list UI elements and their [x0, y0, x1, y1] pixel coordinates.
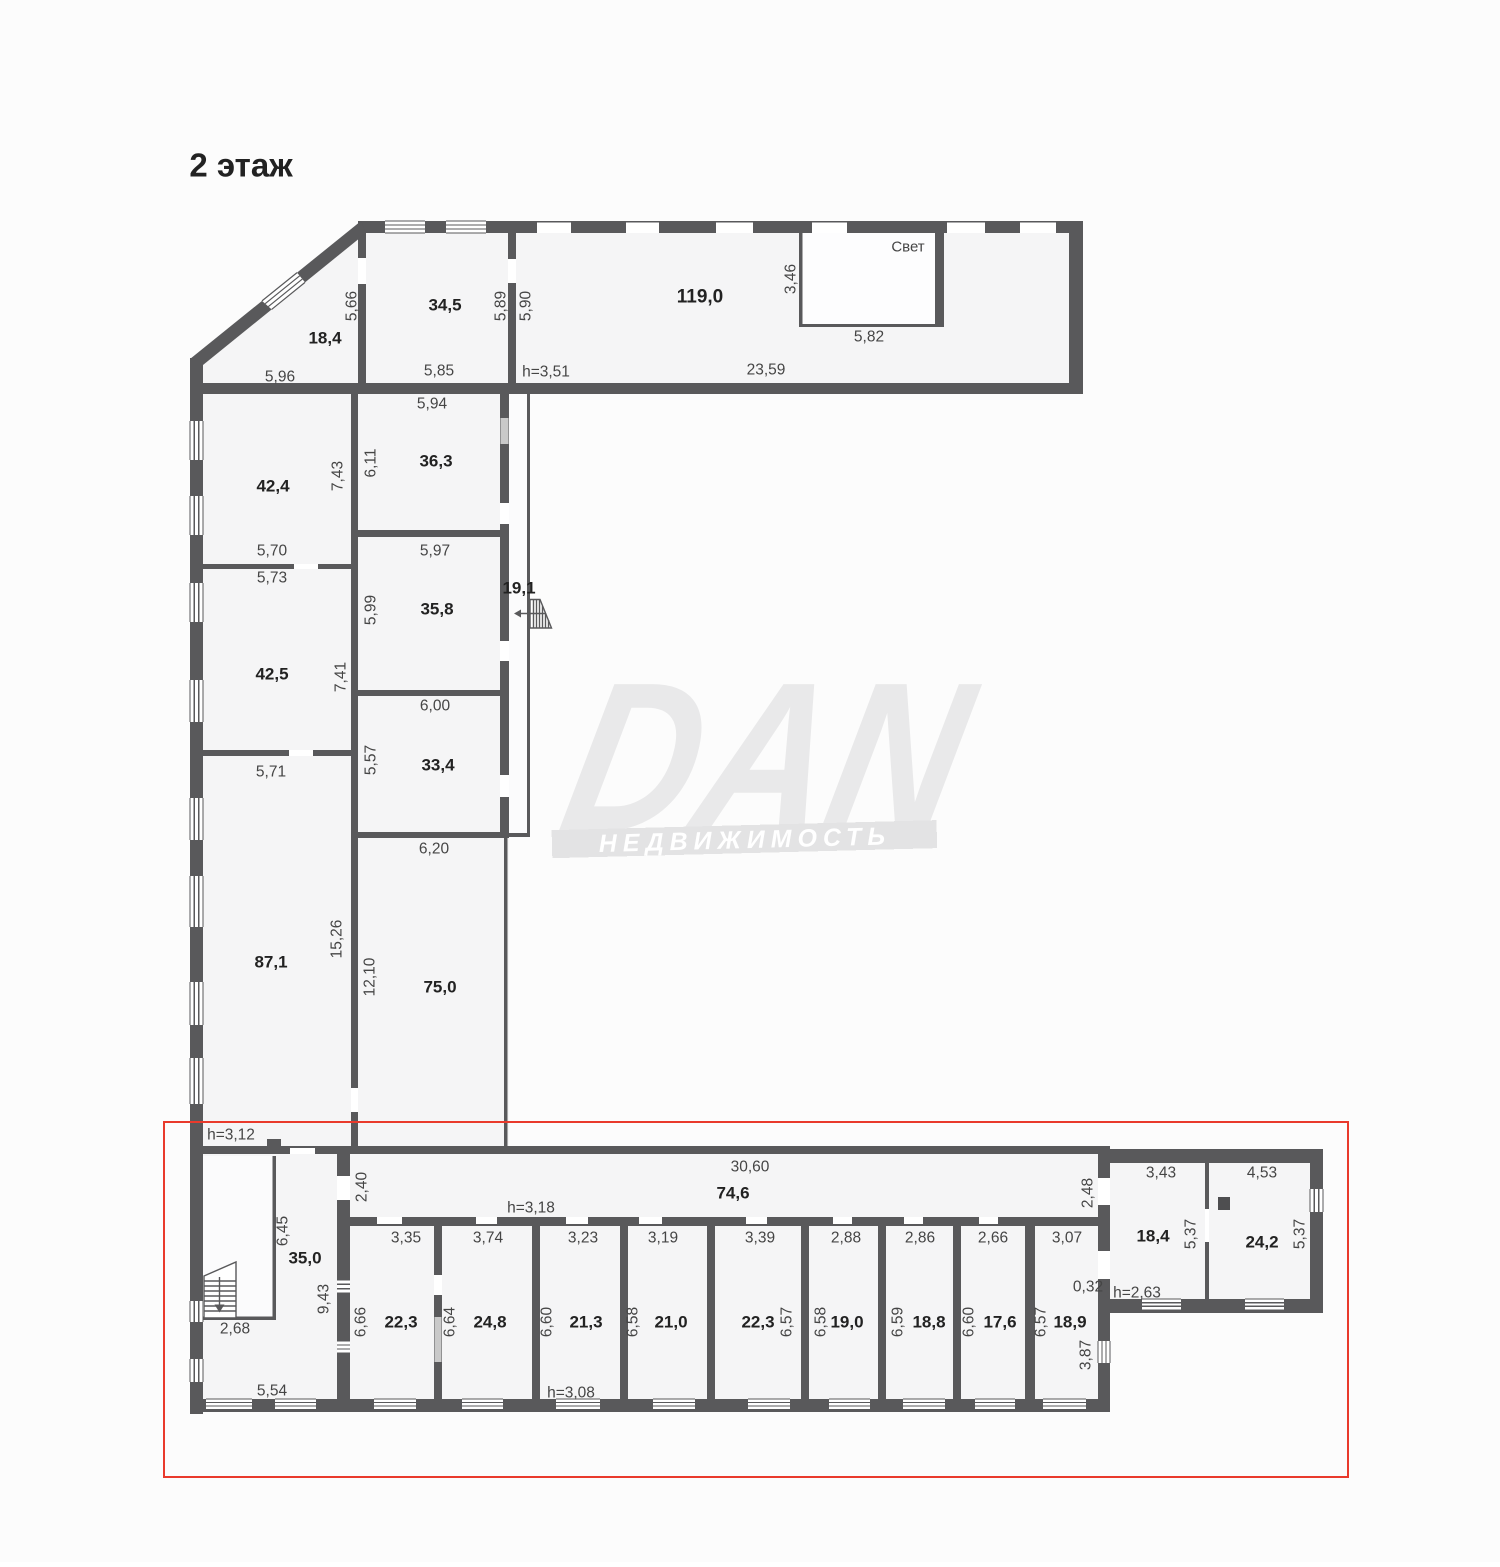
svg-text:5,99: 5,99 [363, 595, 380, 625]
svg-text:5,82: 5,82 [854, 329, 884, 346]
svg-text:2,88: 2,88 [831, 1230, 861, 1247]
svg-text:18,4: 18,4 [1136, 1227, 1170, 1246]
svg-text:18,8: 18,8 [912, 1313, 945, 1332]
svg-text:6,20: 6,20 [419, 841, 450, 858]
svg-text:18,9: 18,9 [1053, 1313, 1086, 1332]
svg-text:18,4: 18,4 [308, 329, 342, 348]
svg-text:2,40: 2,40 [354, 1172, 371, 1203]
svg-text:6,00: 6,00 [420, 698, 451, 715]
svg-text:2,48: 2,48 [1080, 1178, 1097, 1208]
svg-text:5,66: 5,66 [344, 291, 361, 321]
svg-text:36,3: 36,3 [419, 452, 452, 471]
svg-text:75,0: 75,0 [423, 978, 456, 997]
svg-text:6,57: 6,57 [1033, 1307, 1050, 1337]
svg-text:h=3,18: h=3,18 [507, 1200, 555, 1217]
svg-text:5,37: 5,37 [1183, 1219, 1200, 1249]
svg-text:2,68: 2,68 [220, 1321, 250, 1338]
svg-text:21,0: 21,0 [654, 1313, 687, 1332]
svg-text:2,86: 2,86 [905, 1230, 935, 1247]
svg-text:6,57: 6,57 [779, 1307, 796, 1337]
svg-text:5,96: 5,96 [265, 369, 295, 386]
svg-text:23,59: 23,59 [747, 362, 786, 379]
svg-text:3,46: 3,46 [783, 264, 800, 294]
svg-text:5,97: 5,97 [420, 543, 450, 560]
svg-text:6,66: 6,66 [353, 1307, 370, 1337]
svg-text:3,35: 3,35 [391, 1230, 421, 1247]
svg-text:22,3: 22,3 [384, 1313, 417, 1332]
svg-text:6,45: 6,45 [275, 1216, 292, 1246]
svg-text:6,58: 6,58 [625, 1307, 642, 1337]
svg-text:119,0: 119,0 [677, 287, 724, 308]
svg-text:35,8: 35,8 [420, 600, 453, 619]
svg-text:6,60: 6,60 [539, 1307, 556, 1338]
svg-text:5,89: 5,89 [493, 291, 510, 321]
svg-text:5,54: 5,54 [257, 1383, 288, 1400]
svg-text:5,57: 5,57 [363, 745, 380, 775]
svg-text:2,66: 2,66 [978, 1230, 1008, 1247]
svg-text:24,8: 24,8 [473, 1313, 506, 1332]
svg-text:6,58: 6,58 [813, 1307, 830, 1337]
svg-text:7,41: 7,41 [333, 662, 350, 692]
svg-text:Свет: Свет [891, 239, 924, 256]
svg-text:3,43: 3,43 [1146, 1165, 1176, 1182]
svg-text:33,4: 33,4 [421, 756, 455, 775]
svg-text:42,5: 42,5 [255, 665, 288, 684]
svg-text:h=3,51: h=3,51 [522, 364, 570, 381]
svg-text:6,64: 6,64 [442, 1307, 459, 1338]
svg-text:6,60: 6,60 [961, 1307, 978, 1338]
svg-text:42,4: 42,4 [256, 477, 290, 496]
svg-text:5,73: 5,73 [257, 570, 287, 587]
svg-text:3,74: 3,74 [473, 1230, 504, 1247]
svg-text:74,6: 74,6 [716, 1184, 749, 1203]
svg-text:5,37: 5,37 [1292, 1219, 1309, 1249]
svg-text:12,10: 12,10 [362, 957, 379, 996]
svg-text:17,6: 17,6 [983, 1313, 1016, 1332]
svg-text:7,43: 7,43 [330, 461, 347, 491]
svg-text:19,0: 19,0 [830, 1313, 863, 1332]
svg-text:30,60: 30,60 [731, 1159, 770, 1176]
svg-text:h=3,12: h=3,12 [207, 1127, 255, 1144]
svg-text:3,87: 3,87 [1078, 1340, 1095, 1370]
svg-text:9,43: 9,43 [316, 1284, 333, 1314]
svg-text:34,5: 34,5 [428, 296, 461, 315]
svg-text:35,0: 35,0 [288, 1249, 321, 1268]
svg-text:5,71: 5,71 [256, 764, 286, 781]
svg-text:6,59: 6,59 [890, 1307, 907, 1337]
svg-text:87,1: 87,1 [254, 953, 287, 972]
svg-text:5,70: 5,70 [257, 543, 288, 560]
svg-text:6,11: 6,11 [363, 448, 380, 477]
svg-text:0,32: 0,32 [1073, 1279, 1103, 1296]
svg-text:4,53: 4,53 [1247, 1165, 1277, 1182]
svg-text:22,3: 22,3 [741, 1313, 774, 1332]
svg-text:2 этаж: 2 этаж [189, 147, 293, 184]
svg-text:5,85: 5,85 [424, 363, 454, 380]
svg-text:3,39: 3,39 [745, 1230, 775, 1247]
svg-text:3,23: 3,23 [568, 1230, 598, 1247]
svg-text:15,26: 15,26 [329, 920, 346, 959]
svg-text:h=3,08: h=3,08 [547, 1385, 595, 1402]
svg-text:3,19: 3,19 [648, 1230, 678, 1247]
svg-text:5,90: 5,90 [518, 291, 535, 322]
svg-text:19,1: 19,1 [502, 579, 535, 598]
svg-text:21,3: 21,3 [569, 1313, 602, 1332]
svg-text:h=2,63: h=2,63 [1113, 1285, 1161, 1302]
svg-text:3,07: 3,07 [1052, 1230, 1082, 1247]
svg-text:5,94: 5,94 [417, 396, 448, 413]
svg-text:24,2: 24,2 [1245, 1233, 1278, 1252]
